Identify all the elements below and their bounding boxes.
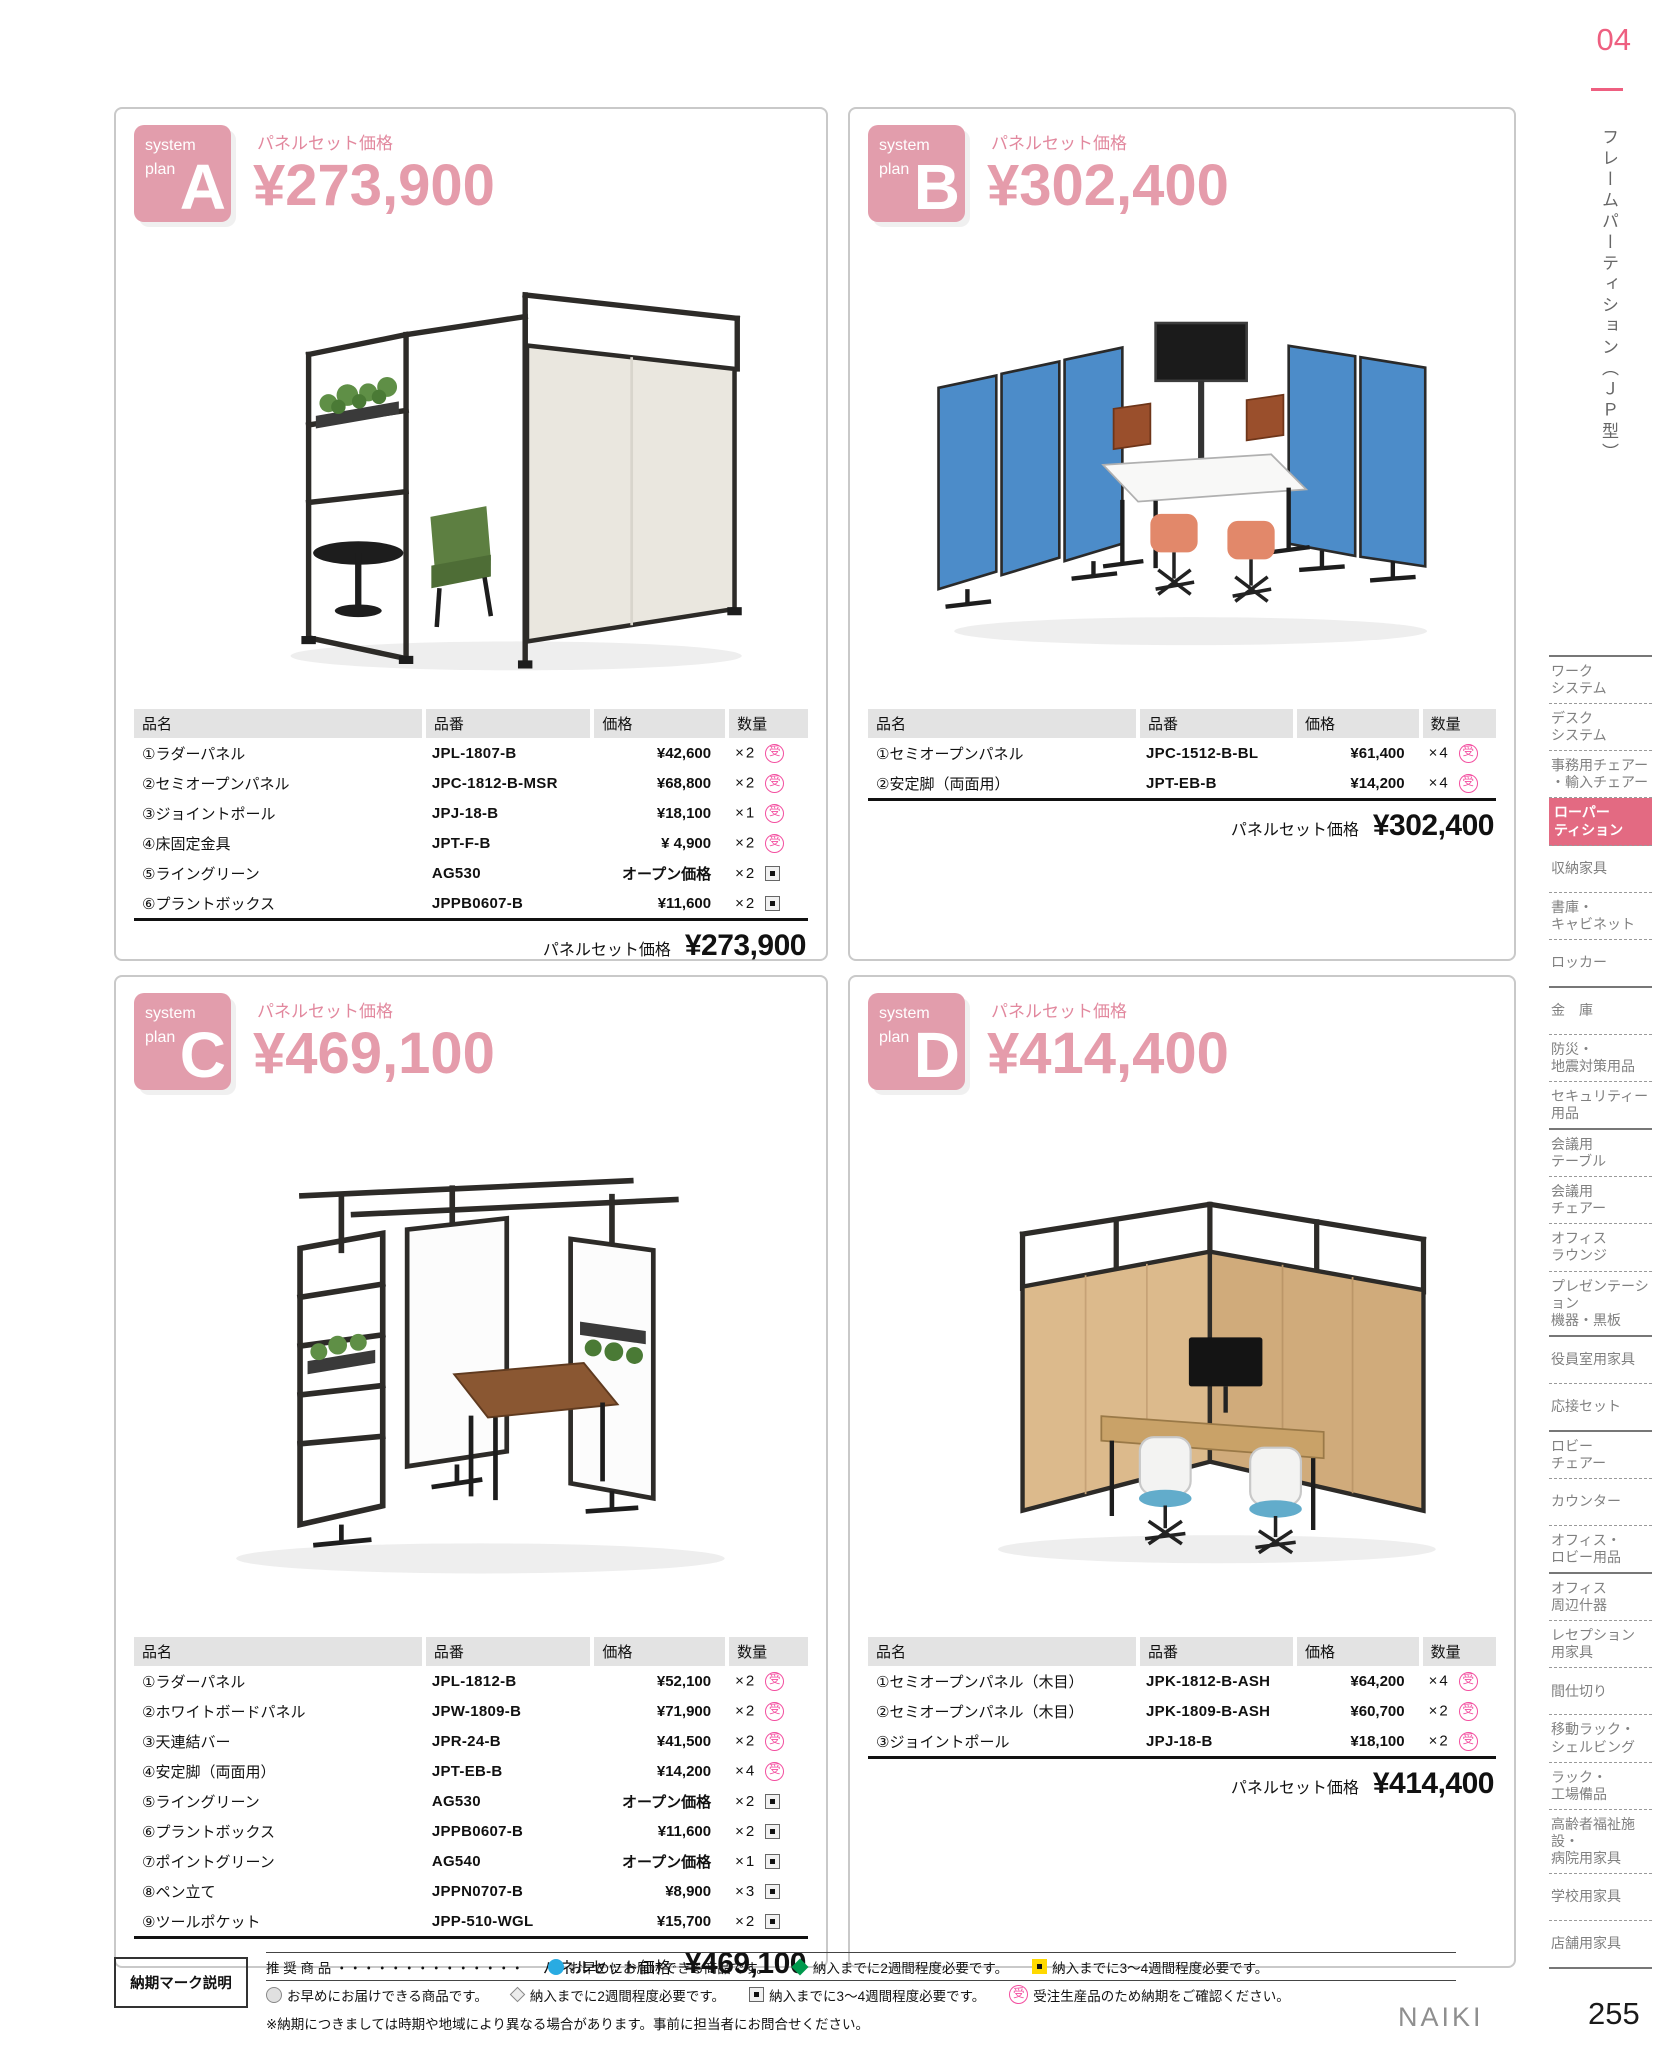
sidebar-item[interactable]: ロッカー [1549, 940, 1652, 988]
delivery-mark-icon: 受 [765, 1732, 784, 1751]
delivery-mark-icon [1032, 1959, 1047, 1974]
badge-letter: C [180, 1018, 226, 1092]
col-header-qty: 数量 [1421, 1637, 1496, 1666]
sidebar-item-label: ロッカー [1551, 954, 1607, 971]
sidebar-item-label: オフィス 周辺什器 [1551, 1580, 1607, 1614]
col-header-code: 品番 [424, 1637, 593, 1666]
sidebar-item[interactable]: ローパー ティション [1549, 798, 1652, 845]
sidebar-item-label: レセプション 用家具 [1551, 1627, 1635, 1661]
sidebar-item-label: 防災・ 地震対策用品 [1551, 1041, 1635, 1075]
legend-item-text: 推 奨 商 品 ・・・・・・・・・・・・・・ [266, 1957, 524, 1977]
legend-item-text: お早めにお届けできる商品です。 [569, 1957, 770, 1977]
delivery-mark-icon: 受 [765, 1702, 784, 1721]
sidebar-item-label: 会議用 テーブル [1551, 1136, 1606, 1170]
col-header-price: 価格 [592, 709, 727, 738]
delivery-mark-icon [548, 1959, 564, 1975]
delivery-mark-icon: 受 [1459, 774, 1478, 793]
col-header-code: 品番 [1138, 709, 1295, 738]
delivery-mark-icon: 受 [765, 744, 784, 763]
sidebar-item-label: 店舗用家具 [1551, 1935, 1621, 1952]
sidebar-item-label: 会議用 チェアー [1551, 1183, 1606, 1217]
delivery-mark-icon: 受 [765, 804, 784, 823]
table-row: ②ホワイトボードパネルJPW-1809-B ¥71,900 ×2受 [134, 1696, 808, 1726]
table-row: ①ラダーパネルJPL-1812-B ¥52,100 ×2受 [134, 1666, 808, 1696]
delivery-mark-icon: 受 [765, 774, 784, 793]
col-header-price: 価格 [1295, 709, 1421, 738]
panel-set-price: ¥469,100 [253, 1024, 495, 1083]
plan-a-card: systemplan A パネルセット価格 ¥273,900 [114, 107, 828, 961]
plan-c-badge: systemplan C [134, 993, 231, 1090]
table-row: ⑤ライングリーンAG530 オープン価格 ×2 [134, 858, 808, 888]
plan-d-illustration [893, 1118, 1471, 1627]
sidebar-item-label: 応接セット [1551, 1398, 1621, 1415]
table-row: ⑥プラントボックスJPPB0607-B ¥11,600 ×2 [134, 1816, 808, 1846]
plan-a-price-block: パネルセット価格 ¥273,900 [253, 125, 495, 215]
delivery-mark-icon [791, 1958, 808, 1975]
table-row: ⑧ペン立てJPPN0707-B ¥8,900 ×3 [134, 1876, 808, 1906]
table-header-row: 品名 品番 価格 数量 [134, 709, 808, 738]
legend-item-text: 納入までに2週間程度必要です。 [813, 1957, 1008, 1977]
sidebar-item[interactable]: 防災・ 地震対策用品 [1549, 1035, 1652, 1082]
sidebar-item[interactable]: オフィス ラウンジ [1549, 1224, 1652, 1271]
delivery-mark-icon: 受 [1459, 1702, 1478, 1721]
table-row: ③天連結バーJPR-24-B ¥41,500 ×2受 [134, 1726, 808, 1756]
delivery-mark-icon: 受 [1459, 1672, 1478, 1691]
badge-letter: D [914, 1018, 960, 1092]
plan-d-header: systemplan D パネルセット価格 ¥414,400 [868, 993, 1496, 1107]
plan-c-illustration [161, 1118, 781, 1627]
sidebar-item-label: ラック・ 工場備品 [1551, 1769, 1607, 1803]
sidebar-item[interactable]: 学校用家具 [1549, 1874, 1652, 1921]
plan-c-card: systemplan C パネルセット価格 ¥469,100 [114, 975, 828, 1968]
col-header-price: 価格 [1295, 1637, 1421, 1666]
sidebar-item[interactable]: ラック・ 工場備品 [1549, 1763, 1652, 1810]
col-header-name: 品名 [134, 709, 424, 738]
plan-d-figure [868, 1107, 1496, 1637]
price-label: パネルセット価格 [257, 129, 495, 154]
sidebar-item[interactable]: ロビー チェアー [1549, 1432, 1652, 1479]
legend-item-text: お早めにお届けできる商品です。 [287, 1985, 488, 2005]
delivery-mark-icon [510, 1987, 526, 2003]
col-header-price: 価格 [592, 1637, 727, 1666]
col-header-qty: 数量 [727, 709, 808, 738]
col-header-qty: 数量 [727, 1637, 808, 1666]
table-header-row: 品名 品番 価格 数量 [868, 709, 1496, 738]
table-row: ②安定脚（両面用）JPT-EB-B ¥14,200 ×4受 [868, 768, 1496, 800]
sidebar-item[interactable]: 会議用 テーブル [1549, 1130, 1652, 1177]
delivery-mark-icon [765, 1824, 780, 1839]
sidebar-item-label: 書庫・ キャビネット [1551, 899, 1635, 933]
panel-set-price: ¥414,400 [987, 1024, 1229, 1083]
sidebar-item[interactable]: デスク システム [1549, 704, 1652, 751]
sidebar-item[interactable]: 店舗用家具 [1549, 1921, 1652, 1969]
delivery-mark-icon [765, 1794, 780, 1809]
panel-set-total: パネルセット価格 ¥414,400 [868, 1767, 1496, 1801]
plan-b-badge: systemplan B [868, 125, 965, 222]
sidebar-item[interactable]: 書庫・ キャビネット [1549, 893, 1652, 940]
table-row: ②セミオープンパネル（木目）JPK-1809-B-ASH ¥60,700 ×2受 [868, 1696, 1496, 1726]
sidebar-item-label: ローパー ティション [1554, 804, 1623, 838]
catalog-page: systemplan A パネルセット価格 ¥273,900 [0, 0, 1653, 2047]
delivery-legend: 納期マーク説明 推 奨 商 品 ・・・・・・・・・・・・・・ お早めにお届けでき… [114, 1952, 1516, 2034]
legend-rows: 推 奨 商 品 ・・・・・・・・・・・・・・ お早めにお届けできる商品です。 納… [266, 1952, 1456, 2034]
delivery-mark-icon [765, 1854, 780, 1869]
sidebar-item[interactable]: ワーク システム [1549, 657, 1652, 704]
sidebar-item-label: 高齢者福祉施設・ 病院用家具 [1551, 1816, 1652, 1867]
sidebar-item-label: 移動ラック・ シェルビング [1551, 1721, 1635, 1755]
plan-b-figure [868, 239, 1496, 709]
chapter-title-vertical: フレームパーティション（ＪＰ型） [1596, 128, 1621, 464]
plan-a-badge: systemplan A [134, 125, 231, 222]
sidebar-item[interactable]: 応接セット [1549, 1384, 1652, 1432]
sidebar-item-label: セキュリティー 用品 [1551, 1088, 1648, 1122]
delivery-mark-icon [765, 866, 780, 881]
sidebar-item-label: 役員室用家具 [1551, 1351, 1635, 1368]
category-sidebar: 04 フレームパーティション（ＪＰ型） ワーク システム デスク システム 事務… [1545, 0, 1653, 2047]
sidebar-item[interactable]: レセプション 用家具 [1549, 1621, 1652, 1668]
sidebar-item-label: オフィス ラウンジ [1551, 1230, 1607, 1264]
legend-item: 納入までに3～4週間程度必要です。 [1032, 1957, 1268, 1977]
sidebar-item[interactable]: セキュリティー 用品 [1549, 1082, 1652, 1130]
table-row: ⑨ツールポケットJPP-510-WGL ¥15,700 ×2 [134, 1906, 808, 1938]
sidebar-item-label: 収納家具 [1551, 860, 1607, 877]
sidebar-item-label: カウンター [1551, 1493, 1621, 1510]
col-header-name: 品名 [134, 1637, 424, 1666]
delivery-mark-icon [765, 1914, 780, 1929]
table-row: ⑦ポイントグリーンAG540 オープン価格 ×1 [134, 1846, 808, 1876]
sidebar-item-label: ワーク システム [1551, 663, 1607, 697]
plan-b-parts-table: 品名 品番 価格 数量 ①セミオープンパネルJPC-1512-B-BL ¥61,… [868, 709, 1496, 801]
legend-item: 納入までに2週間程度必要です。 [512, 1985, 725, 2005]
plan-c-figure [134, 1107, 808, 1637]
col-header-code: 品番 [424, 709, 593, 738]
sidebar-item[interactable]: 高齢者福祉施設・ 病院用家具 [1549, 1810, 1652, 1874]
legend-item: 推 奨 商 品 ・・・・・・・・・・・・・・ [266, 1957, 524, 1977]
plan-cards-grid: systemplan A パネルセット価格 ¥273,900 [114, 107, 1516, 1968]
sidebar-item[interactable]: プレゼンテーション 機器・黒板 [1549, 1272, 1652, 1337]
col-header-code: 品番 [1138, 1637, 1295, 1666]
plan-c-price-block: パネルセット価格 ¥469,100 [253, 993, 495, 1083]
legend-item-text: 納入までに3～4週間程度必要です。 [1052, 1957, 1268, 1977]
sidebar-item-label: ロビー チェアー [1551, 1438, 1606, 1472]
brand-logo: NAIKI [1398, 2002, 1484, 2033]
panel-set-total: パネルセット価格 ¥273,900 [134, 929, 808, 963]
plan-b-header: systemplan B パネルセット価格 ¥302,400 [868, 125, 1496, 239]
table-row: ①セミオープンパネル（木目）JPK-1812-B-ASH ¥64,200 ×4受 [868, 1666, 1496, 1696]
plan-b-illustration [893, 248, 1471, 699]
sidebar-item-label: オフィス・ ロビー用品 [1551, 1532, 1621, 1566]
legend-item-text: 納入までに2週間程度必要です。 [530, 1985, 725, 2005]
table-row: ①ラダーパネルJPL-1807-B ¥42,600 ×2受 [134, 738, 808, 768]
legend-item: 納入までに2週間程度必要です。 [794, 1957, 1008, 1977]
col-header-name: 品名 [868, 709, 1138, 738]
sidebar-item[interactable]: カウンター [1549, 1479, 1652, 1526]
legend-item-text: 納入までに3～4週間程度必要です。 [769, 1985, 985, 2005]
sidebar-item-label: プレゼンテーション 機器・黒板 [1551, 1278, 1652, 1329]
price-label: パネルセット価格 [991, 997, 1229, 1022]
sidebar-item[interactable]: オフィス 周辺什器 [1549, 1574, 1652, 1621]
table-header-row: 品名 品番 価格 数量 [868, 1637, 1496, 1666]
badge-letter: A [180, 150, 226, 224]
delivery-mark-icon: 受 [765, 834, 784, 853]
sidebar-item-label: デスク システム [1551, 710, 1607, 744]
plan-a-illustration [161, 248, 781, 699]
plan-d-card: systemplan D パネルセット価格 ¥414,400 [848, 975, 1516, 1968]
table-header-row: 品名 品番 価格 数量 [134, 1637, 808, 1666]
price-label: パネルセット価格 [257, 997, 495, 1022]
table-row: ④安定脚（両面用）JPT-EB-B ¥14,200 ×4受 [134, 1756, 808, 1786]
table-row: ⑤ライングリーンAG530 オープン価格 ×2 [134, 1786, 808, 1816]
badge-letter: B [914, 150, 960, 224]
table-row: ②セミオープンパネルJPC-1812-B-MSR ¥68,800 ×2受 [134, 768, 808, 798]
sidebar-item-label: 学校用家具 [1551, 1888, 1621, 1905]
page-number: 255 [1588, 1996, 1640, 2032]
legend-row-1: 推 奨 商 品 ・・・・・・・・・・・・・・ お早めにお届けできる商品です。 納… [266, 1952, 1456, 1981]
category-list: ワーク システム デスク システム 事務用チェアー ・輸入チェアー ローパー テ… [1549, 655, 1652, 1969]
sidebar-item[interactable]: オフィス・ ロビー用品 [1549, 1526, 1652, 1574]
plan-d-price-block: パネルセット価格 ¥414,400 [987, 993, 1229, 1083]
sidebar-item[interactable]: 事務用チェアー ・輸入チェアー [1549, 751, 1652, 798]
plan-a-header: systemplan A パネルセット価格 ¥273,900 [134, 125, 808, 239]
legend-note: ※納期につきましては時期や地域により異なる場合があります。事前に担当者にお問合せ… [266, 2012, 1456, 2034]
legend-item: お早めにお届けできる商品です。 [266, 1985, 488, 2005]
legend-item: お早めにお届けできる商品です。 [548, 1957, 770, 1977]
sidebar-item-label: 間仕切り [1551, 1683, 1607, 1700]
sidebar-item[interactable]: 間仕切り [1549, 1668, 1652, 1715]
table-row: ④床固定金具JPT-F-B ¥ 4,900 ×2受 [134, 828, 808, 858]
plan-b-card: systemplan B パネルセット価格 ¥302,400 [848, 107, 1516, 961]
table-row: ⑥プラントボックスJPPB0607-B ¥11,600 ×2 [134, 888, 808, 920]
sidebar-item[interactable]: 収納家具 [1549, 846, 1652, 893]
sidebar-item[interactable]: 会議用 チェアー [1549, 1177, 1652, 1224]
delivery-mark-icon: 受 [1459, 744, 1478, 763]
table-row: ③ジョイントポールJPJ-18-B ¥18,100 ×1受 [134, 798, 808, 828]
sidebar-item[interactable]: 役員室用家具 [1549, 1337, 1652, 1384]
section-number: 04 [1597, 22, 1631, 58]
plan-d-parts-table: 品名 品番 価格 数量 ①セミオープンパネル（木目）JPK-1812-B-ASH… [868, 1637, 1496, 1759]
sidebar-item[interactable]: 金 庫 [1549, 988, 1652, 1035]
table-row: ③ジョイントポールJPJ-18-B ¥18,100 ×2受 [868, 1726, 1496, 1758]
delivery-mark-icon: 受 [765, 1672, 784, 1691]
legend-item: 納入までに3～4週間程度必要です。 [749, 1985, 985, 2005]
delivery-mark-icon: 受 [1009, 1985, 1028, 2004]
plan-c-header: systemplan C パネルセット価格 ¥469,100 [134, 993, 808, 1107]
plan-a-figure [134, 239, 808, 709]
sidebar-item-label: 事務用チェアー ・輸入チェアー [1551, 757, 1648, 791]
legend-title-box: 納期マーク説明 [114, 1957, 248, 2008]
section-divider [1591, 88, 1623, 91]
plan-b-price-block: パネルセット価格 ¥302,400 [987, 125, 1229, 215]
panel-set-price: ¥302,400 [987, 156, 1229, 215]
legend-item: 受 受注生産品のため納期をご確認ください。 [1009, 1985, 1290, 2005]
plan-c-parts-table: 品名 品番 価格 数量 ①ラダーパネルJPL-1812-B ¥52,100 ×2… [134, 1637, 808, 1939]
delivery-mark-icon [765, 1884, 780, 1899]
delivery-mark-icon: 受 [1459, 1732, 1478, 1751]
sidebar-item[interactable]: 移動ラック・ シェルビング [1549, 1715, 1652, 1762]
panel-set-price: ¥273,900 [253, 156, 495, 215]
col-header-name: 品名 [868, 1637, 1138, 1666]
delivery-mark-icon [749, 1987, 764, 2002]
col-header-qty: 数量 [1421, 709, 1496, 738]
delivery-mark-icon: 受 [765, 1762, 784, 1781]
legend-row-2: お早めにお届けできる商品です。 納入までに2週間程度必要です。 納入までに3～4… [266, 1981, 1456, 2008]
price-label: パネルセット価格 [991, 129, 1229, 154]
legend-item-text: 受注生産品のため納期をご確認ください。 [1033, 1985, 1290, 2005]
plan-d-badge: systemplan D [868, 993, 965, 1090]
delivery-mark-icon [765, 896, 780, 911]
table-row: ①セミオープンパネルJPC-1512-B-BL ¥61,400 ×4受 [868, 738, 1496, 768]
plan-a-parts-table: 品名 品番 価格 数量 ①ラダーパネルJPL-1807-B ¥42,600 ×2… [134, 709, 808, 921]
sidebar-item-label: 金 庫 [1551, 1002, 1593, 1019]
delivery-mark-icon [266, 1987, 282, 2003]
panel-set-total: パネルセット価格 ¥302,400 [868, 809, 1496, 843]
